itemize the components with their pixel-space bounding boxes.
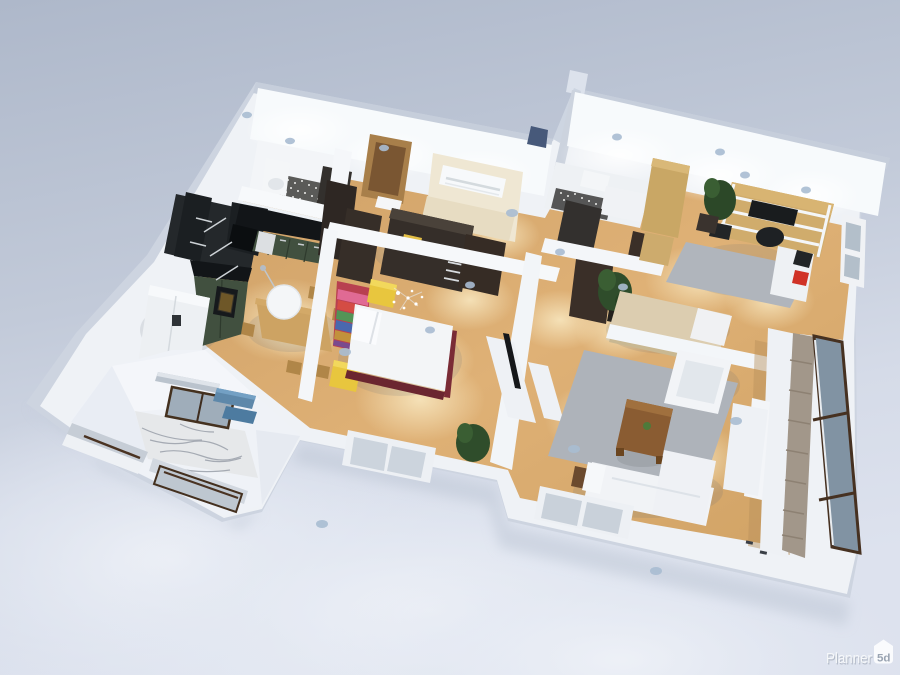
svg-text:5d: 5d xyxy=(877,653,891,665)
svg-text:Planner: Planner xyxy=(826,650,872,667)
